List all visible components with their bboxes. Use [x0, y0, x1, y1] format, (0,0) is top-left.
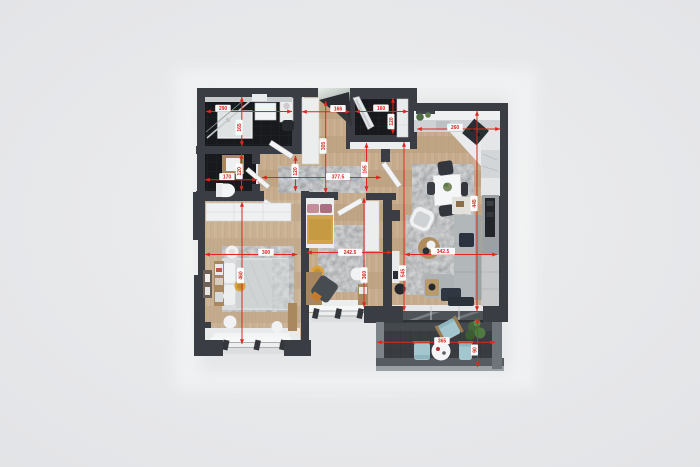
svg-text:166: 166	[334, 106, 343, 112]
svg-text:377.5: 377.5	[332, 174, 345, 180]
svg-text:120: 120	[293, 167, 299, 176]
svg-text:165: 165	[237, 123, 243, 132]
svg-text:242.5: 242.5	[344, 250, 357, 256]
svg-text:160: 160	[377, 106, 386, 112]
svg-text:360: 360	[362, 271, 368, 280]
svg-text:290: 290	[219, 106, 228, 112]
svg-text:445: 445	[472, 199, 478, 208]
svg-text:90: 90	[472, 347, 478, 353]
svg-text:165: 165	[362, 165, 368, 174]
svg-text:170: 170	[223, 175, 232, 181]
svg-text:545: 545	[400, 269, 406, 278]
svg-text:120: 120	[237, 167, 243, 176]
svg-text:365: 365	[438, 339, 447, 345]
svg-text:460: 460	[238, 271, 244, 280]
svg-text:342.5: 342.5	[437, 249, 450, 255]
svg-text:120: 120	[389, 117, 395, 126]
svg-text:260: 260	[451, 125, 460, 131]
svg-text:300: 300	[262, 250, 271, 256]
svg-text:305: 305	[321, 142, 327, 151]
